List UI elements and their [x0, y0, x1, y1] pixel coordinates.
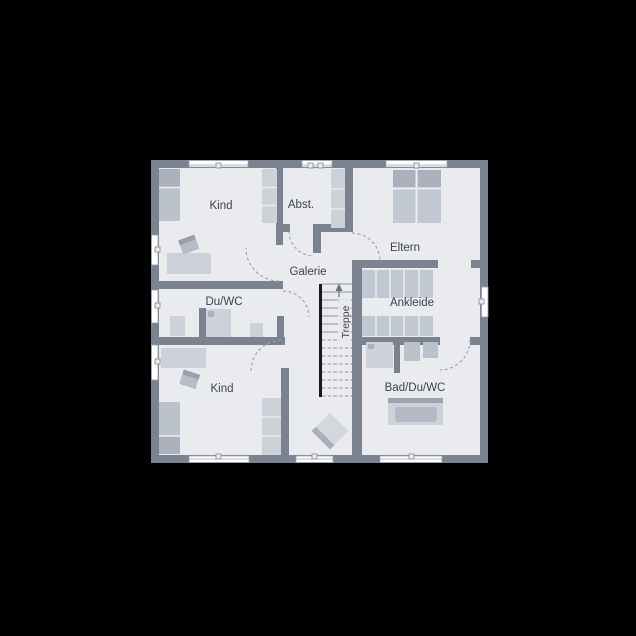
shower-head-icon	[368, 344, 374, 349]
sink-left	[404, 342, 420, 361]
room-label-galerie: Galerie	[289, 266, 326, 278]
closet-row-bottom	[362, 316, 433, 336]
shower-head-icon	[208, 311, 214, 317]
room-label-duwc: Du/WC	[205, 296, 242, 308]
room-label-abst: Abst.	[288, 199, 314, 211]
bed-pillow	[159, 437, 180, 454]
closet-row-top	[362, 270, 433, 298]
window-tick	[414, 163, 419, 168]
wardrobe	[262, 398, 281, 455]
screenshot-canvas: Kind Abst. Eltern Galerie Du/WC Ankleide…	[0, 0, 636, 636]
room-label-bad: Bad/Du/WC	[385, 382, 446, 394]
stair-stringer	[319, 284, 322, 397]
wall-duwc-kindbottom	[159, 337, 285, 345]
sink-right	[423, 342, 438, 358]
wall-abst-stub-left	[283, 224, 290, 232]
wardrobe	[262, 169, 277, 223]
window-tick	[312, 454, 317, 459]
window-tick	[216, 163, 221, 168]
window-tick	[216, 454, 221, 459]
room-label-kind-bottom: Kind	[210, 383, 233, 395]
wall-kindtop-duwc	[159, 281, 283, 289]
window-tick	[155, 359, 160, 364]
wall-abst-spur	[313, 224, 321, 253]
furniture-eltern	[393, 170, 441, 223]
room-label-ankleide: Ankleide	[390, 297, 434, 309]
wall-kindbottom-galerie	[281, 368, 289, 455]
wall-bad-stub-right	[470, 337, 480, 345]
bed-pillow-right	[418, 170, 441, 187]
shelf	[331, 169, 345, 228]
furniture-abst	[331, 169, 345, 228]
window-tick	[479, 299, 484, 304]
window-tick	[308, 163, 313, 168]
wall-bad-partition	[394, 341, 400, 373]
window-tick	[318, 163, 323, 168]
bathtub-ledge	[388, 398, 443, 403]
wall-duwc-partition	[199, 308, 206, 345]
toilet	[250, 323, 263, 337]
window-tick	[155, 303, 160, 308]
window-tick	[155, 247, 160, 252]
room-label-kind-top: Kind	[209, 200, 232, 212]
room-label-eltern: Eltern	[390, 242, 420, 254]
bed-pillow	[159, 169, 180, 187]
wall-stair-ankleide	[352, 261, 362, 455]
room-label-treppe: Treppe	[340, 305, 352, 338]
washbasin	[170, 316, 185, 336]
wall-ankleide-top	[352, 260, 438, 268]
desk	[167, 253, 211, 274]
wall-ankleide-stub-right	[471, 260, 480, 268]
bed-pillow-left	[393, 170, 416, 187]
window-top-2	[302, 161, 332, 168]
floor-plan: Kind Abst. Eltern Galerie Du/WC Ankleide…	[0, 0, 636, 636]
wall-kindtop-abst	[276, 168, 283, 245]
wall-abst-eltern	[345, 168, 353, 232]
desk	[161, 348, 206, 368]
bathtub-basin	[395, 407, 437, 422]
window-tick	[409, 454, 414, 459]
